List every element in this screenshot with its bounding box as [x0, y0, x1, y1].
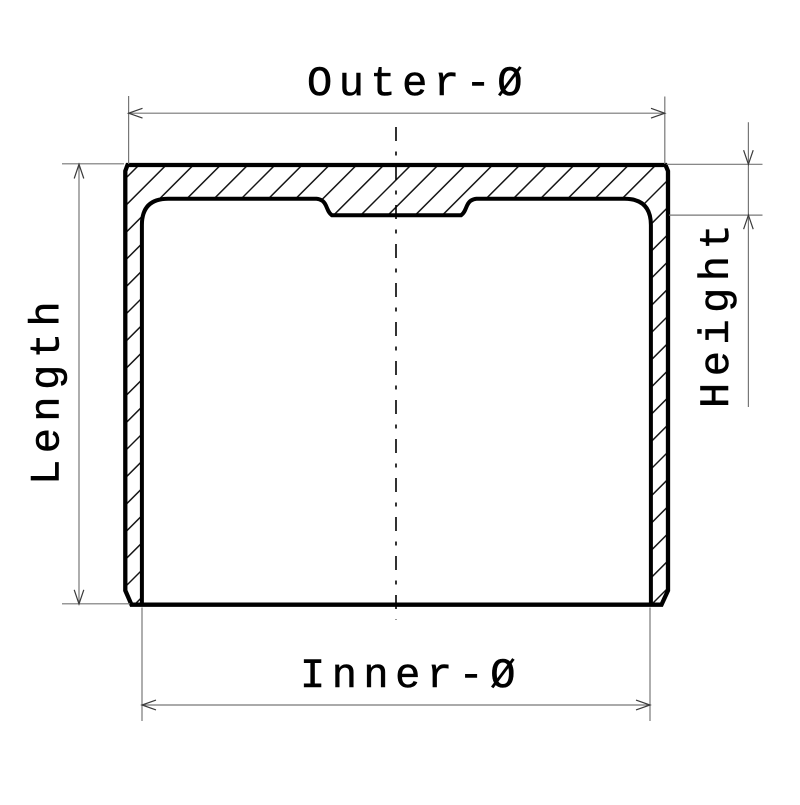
svg-text:Height: Height	[693, 218, 741, 408]
svg-text:Inner-Ø: Inner-Ø	[300, 652, 522, 700]
svg-text:Outer-Ø: Outer-Ø	[307, 60, 529, 108]
svg-text:Length: Length	[24, 295, 72, 485]
